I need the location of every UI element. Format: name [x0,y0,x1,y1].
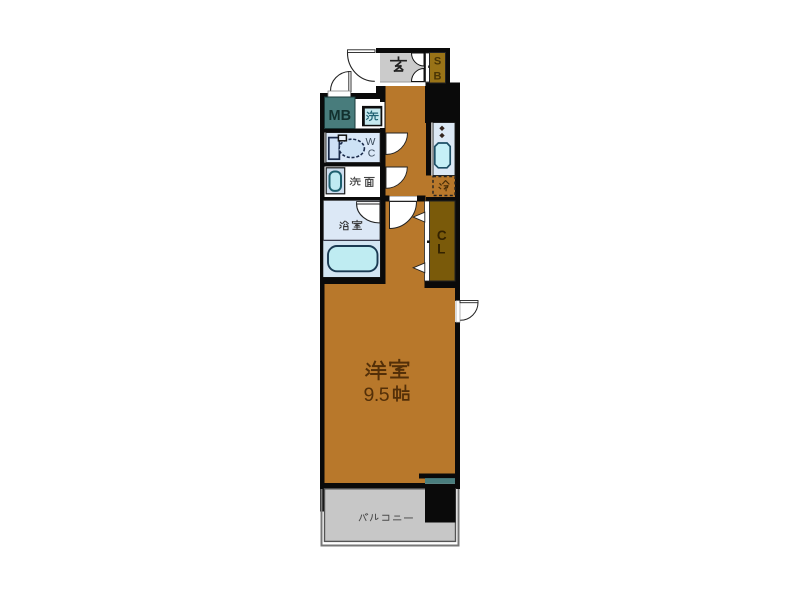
svg-text:C: C [368,148,376,160]
svg-text:MB: MB [329,108,352,124]
svg-text:S: S [434,56,441,68]
svg-text:L: L [437,241,445,256]
svg-text:9.5: 9.5 [364,384,390,406]
svg-text:W: W [365,136,375,148]
svg-text:B: B [434,71,442,83]
